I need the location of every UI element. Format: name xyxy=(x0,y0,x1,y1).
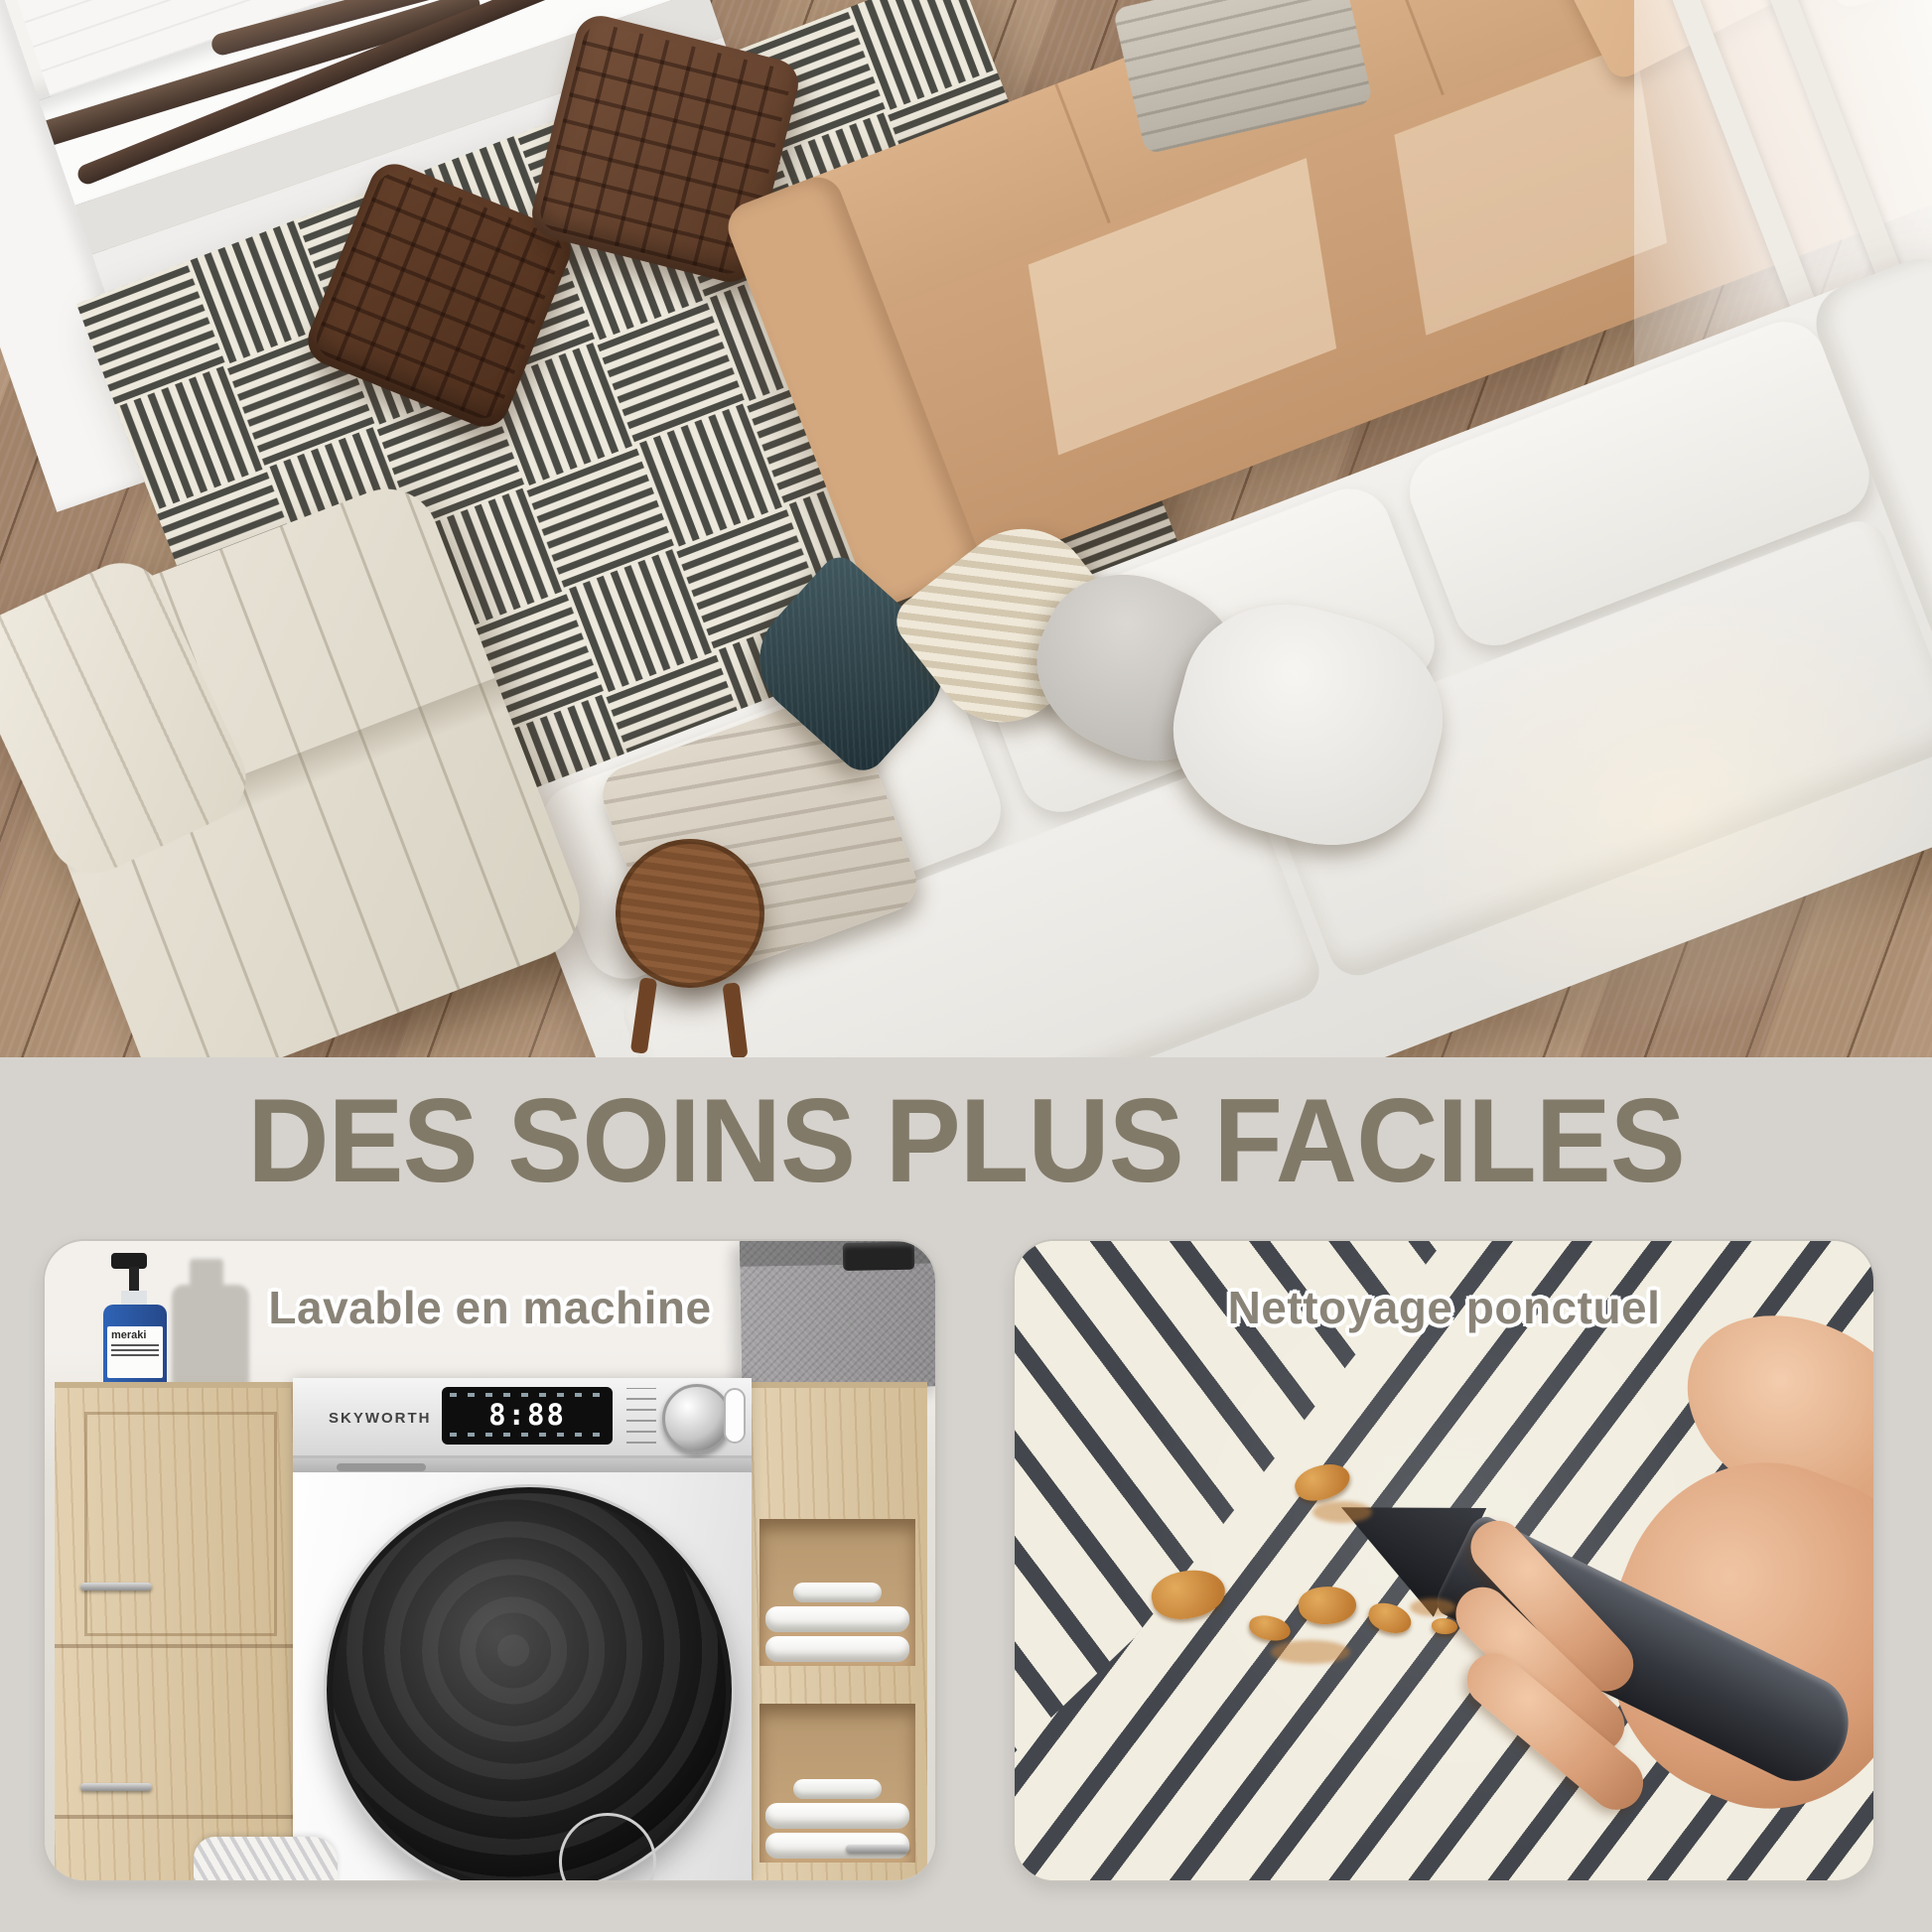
display-icons-row xyxy=(450,1393,605,1397)
machine-handle-notch xyxy=(337,1463,426,1471)
display-time: 8:88 xyxy=(450,1399,605,1431)
machine-washable-panel: meraki xyxy=(43,1239,937,1882)
crumb-dust xyxy=(1312,1501,1372,1523)
right-panel-caption: Nettoyage ponctuel xyxy=(1015,1281,1873,1334)
drawer-handle xyxy=(846,1845,909,1853)
basket-handle-slot xyxy=(843,1242,914,1271)
section-heading: DES SOINS PLUS FACILES xyxy=(0,1082,1932,1201)
machine-brand: SKYWORTH xyxy=(329,1410,432,1427)
towel-stack xyxy=(765,1583,909,1662)
machine-knob xyxy=(662,1384,732,1453)
rolled-towel xyxy=(793,1779,883,1799)
crumb xyxy=(1432,1618,1457,1634)
spot-cleaning-panel: Nettoyage ponctuel xyxy=(1013,1239,1875,1882)
drawer-handle xyxy=(80,1783,152,1791)
wood-stool xyxy=(616,839,764,988)
machine-buttons xyxy=(724,1388,746,1444)
cabinet-right-shelf xyxy=(752,1382,927,1880)
cabinet-door-frame xyxy=(84,1412,277,1636)
crumpled-towel xyxy=(194,1837,338,1882)
product-care-infographic: DES SOINS PLUS FACILES meraki xyxy=(0,0,1932,1932)
program-tick-marks xyxy=(626,1388,656,1444)
crumb-dust xyxy=(1271,1640,1350,1664)
left-panel-caption: Lavable en machine xyxy=(45,1281,935,1334)
shelf-niche xyxy=(759,1704,915,1863)
machine-door xyxy=(327,1487,732,1882)
crumb-dust xyxy=(1410,1598,1455,1616)
washing-machine: SKYWORTH 8:88 xyxy=(293,1378,752,1880)
machine-display: 8:88 xyxy=(442,1387,613,1445)
display-labels-row xyxy=(450,1433,605,1437)
hero-photo-living-room xyxy=(0,0,1932,1057)
shelf-niche xyxy=(759,1519,915,1666)
cabinet-left xyxy=(55,1382,293,1880)
drawer-seam xyxy=(55,1815,293,1819)
drawer-handle xyxy=(80,1583,152,1590)
care-section: DES SOINS PLUS FACILES meraki xyxy=(0,1057,1932,1932)
rolled-towel xyxy=(793,1583,883,1602)
drawer-seam xyxy=(55,1644,293,1648)
machine-control-panel: SKYWORTH 8:88 xyxy=(293,1378,752,1458)
